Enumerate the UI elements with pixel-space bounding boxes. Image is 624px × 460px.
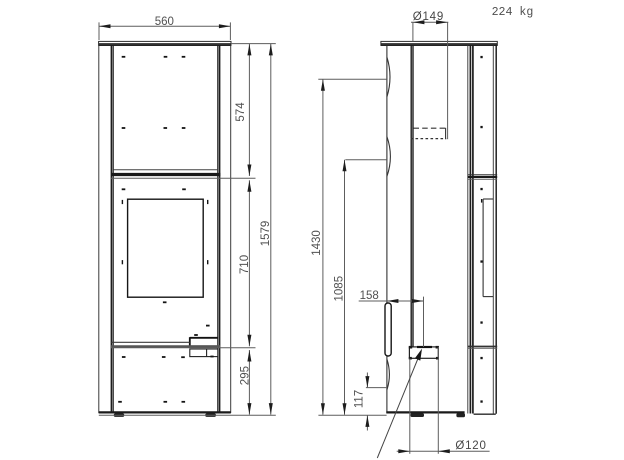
- svg-text:560: 560: [155, 16, 174, 28]
- svg-text:1085: 1085: [333, 276, 345, 302]
- svg-text:117: 117: [354, 390, 366, 408]
- svg-text:158: 158: [360, 290, 379, 302]
- svg-text:Ø149: Ø149: [413, 11, 444, 23]
- svg-text:1430: 1430: [311, 230, 323, 256]
- svg-text:224 kg: 224 kg: [492, 6, 534, 19]
- svg-text:1579: 1579: [260, 221, 272, 247]
- svg-text:574: 574: [235, 102, 247, 122]
- svg-text:710: 710: [239, 255, 251, 274]
- svg-text:295: 295: [239, 366, 251, 385]
- svg-text:Ø120: Ø120: [455, 440, 486, 452]
